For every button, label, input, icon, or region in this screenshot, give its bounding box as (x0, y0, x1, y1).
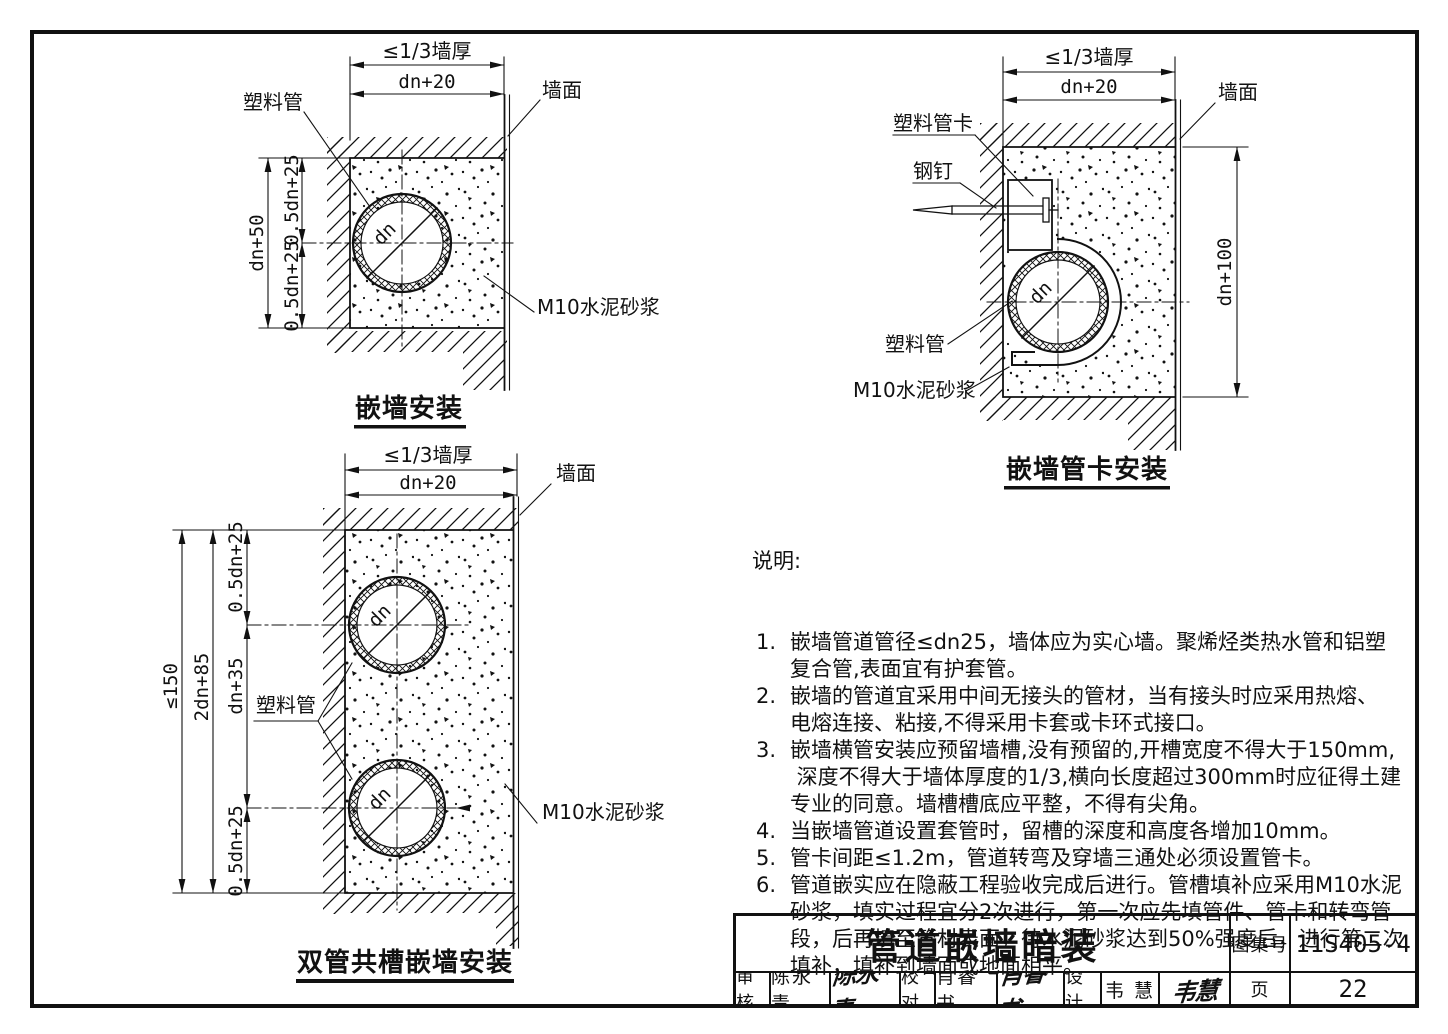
diagram-double-pipe-install: dn dn ≤1/3墙厚 dn+20 (160, 443, 665, 983)
diagram2-title: 嵌墙管卡安装 (1006, 454, 1168, 485)
dim-seg-bottom: 0.5dn+25 (225, 805, 247, 897)
dim-groove-width: dn+20 (398, 71, 455, 93)
dim-half-bottom: 0.5dn+25 (281, 240, 303, 332)
dim-2dn85: 2dn+85 (191, 653, 213, 722)
review-signature: 陈永青 (831, 973, 901, 1005)
diagram3-title-underline (296, 979, 514, 983)
note-line: 6.管道嵌实应在隐蔽工程验收完成后进行。管槽填补应采用M10水泥 (750, 872, 1422, 899)
dim-seg-mid: dn+35 (225, 657, 247, 714)
proof-name: 肖睿书 (936, 973, 998, 1005)
diagram3-title: 双管共槽嵌墙安装 (297, 947, 513, 978)
dim-seg-top: 0.5dn+25 (225, 521, 247, 613)
sheet-title: 管道嵌墙暗装 (736, 916, 1231, 973)
diagram1-title: 嵌墙安装 (355, 393, 463, 424)
label-plastic-pipe: 塑料管 (885, 332, 945, 356)
dim-groove-height: dn+100 (1214, 238, 1236, 307)
note-line: 电熔连接、粘接,不得采用卡套或卡环式接口。 (750, 710, 1422, 737)
diagram-embedded-wall-install: dn ≤1/3墙厚 dn+20 dn+50 0.5dn (243, 39, 660, 429)
note-line: 5.管卡间距≤1.2m，管道转弯及穿墙三通处必须设置管卡。 (750, 845, 1422, 872)
dim-wall-thickness: ≤1/3墙厚 (1045, 45, 1134, 69)
note-line: 4.当嵌墙管道设置套管时，留槽的深度和高度各增加10mm。 (750, 818, 1422, 845)
note-line: 1.嵌墙管道管径≤dn25，墙体应为实心墙。聚烯烃类热水管和铝塑 (750, 629, 1422, 656)
page-label: 页 (1231, 973, 1291, 1005)
dim-groove-width: dn+20 (399, 472, 456, 494)
note-line: 复合管,表面宜有护套管。 (750, 656, 1422, 683)
notes-heading: 说明: (750, 548, 1422, 575)
diagram2-title-underline (1004, 486, 1170, 490)
diagram1-title-underline (354, 425, 466, 429)
note-line: 深度不得大于墙体厚度的1/3,横向长度超过300mm时应征得土建 (750, 764, 1422, 791)
label-wall-face: 墙面 (556, 461, 596, 485)
label-wall-face: 墙面 (1218, 80, 1258, 104)
dim-groove-height: dn+50 (246, 214, 268, 271)
label-mortar: M10水泥砂浆 (853, 378, 976, 402)
label-wall-face: 墙面 (542, 78, 582, 102)
drawing-sheet: dn ≤1/3墙厚 dn+20 dn+50 0.5dn (0, 0, 1448, 1034)
note-line: 3.嵌墙横管安装应预留墙槽,没有预留的,开槽宽度不得大于150mm, (750, 737, 1422, 764)
note-line: 2.嵌墙的管道宜采用中间无接头的管材，当有接头时应采用热熔、 (750, 683, 1422, 710)
title-block: 管道嵌墙暗装 图集号 11S405-4 审核 陈永青 陈永青 校对 肖睿书 肖睿… (733, 913, 1416, 1005)
label-mortar: M10水泥砂浆 (542, 800, 665, 824)
design-signature: 韦慧 (1160, 973, 1231, 1005)
label-mortar: M10水泥砂浆 (537, 295, 660, 319)
proof-label: 校对 (901, 973, 936, 1005)
review-label: 审核 (736, 973, 771, 1005)
dim-wall-thickness: ≤1/3墙厚 (383, 39, 472, 63)
dim-total-height: ≤150 (160, 663, 182, 709)
label-steel-nail: 钢钉 (913, 159, 953, 183)
design-label: 设计 (1065, 973, 1102, 1005)
proof-signature: 肖睿书 (998, 973, 1065, 1005)
dim-half-top: 0.5dn+25 (281, 154, 303, 246)
review-name: 陈永青 (771, 973, 831, 1005)
label-plastic-pipe: 塑料管 (243, 90, 303, 114)
atlas-number-label: 图集号 (1231, 916, 1291, 973)
diagram-pipe-clamp-install: dn ≤1/3墙厚 dn+20 dn+100 (853, 45, 1258, 490)
design-name: 韦 慧 (1102, 973, 1160, 1005)
dim-groove-width: dn+20 (1060, 76, 1117, 98)
dim-wall-thickness: ≤1/3墙厚 (384, 443, 473, 467)
label-plastic-pipe: 塑料管 (256, 693, 316, 717)
atlas-number-value: 11S405-4 (1291, 916, 1415, 973)
page-number: 22 (1291, 973, 1415, 1005)
note-line: 专业的同意。墙槽槽底应平整，不得有尖角。 (750, 791, 1422, 818)
label-plastic-clamp: 塑料管卡 (893, 111, 973, 135)
